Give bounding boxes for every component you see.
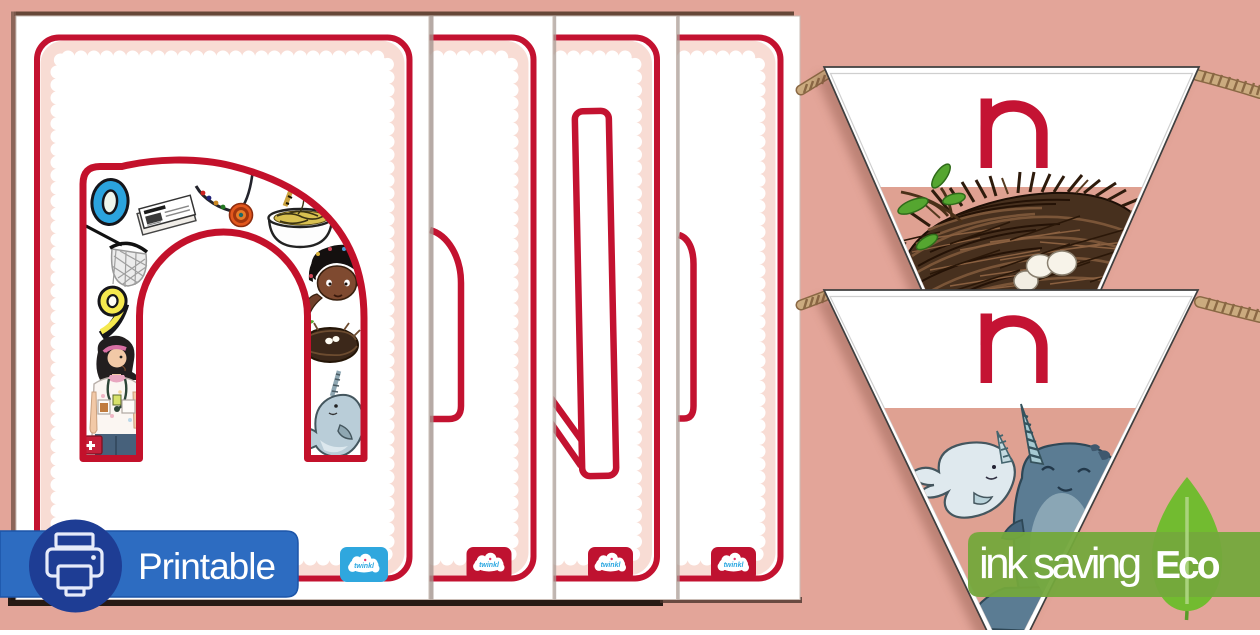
svg-text:Printable: Printable xyxy=(138,546,275,587)
svg-text:ink saving: ink saving xyxy=(979,539,1140,588)
svg-text:Eco: Eco xyxy=(1155,544,1220,587)
